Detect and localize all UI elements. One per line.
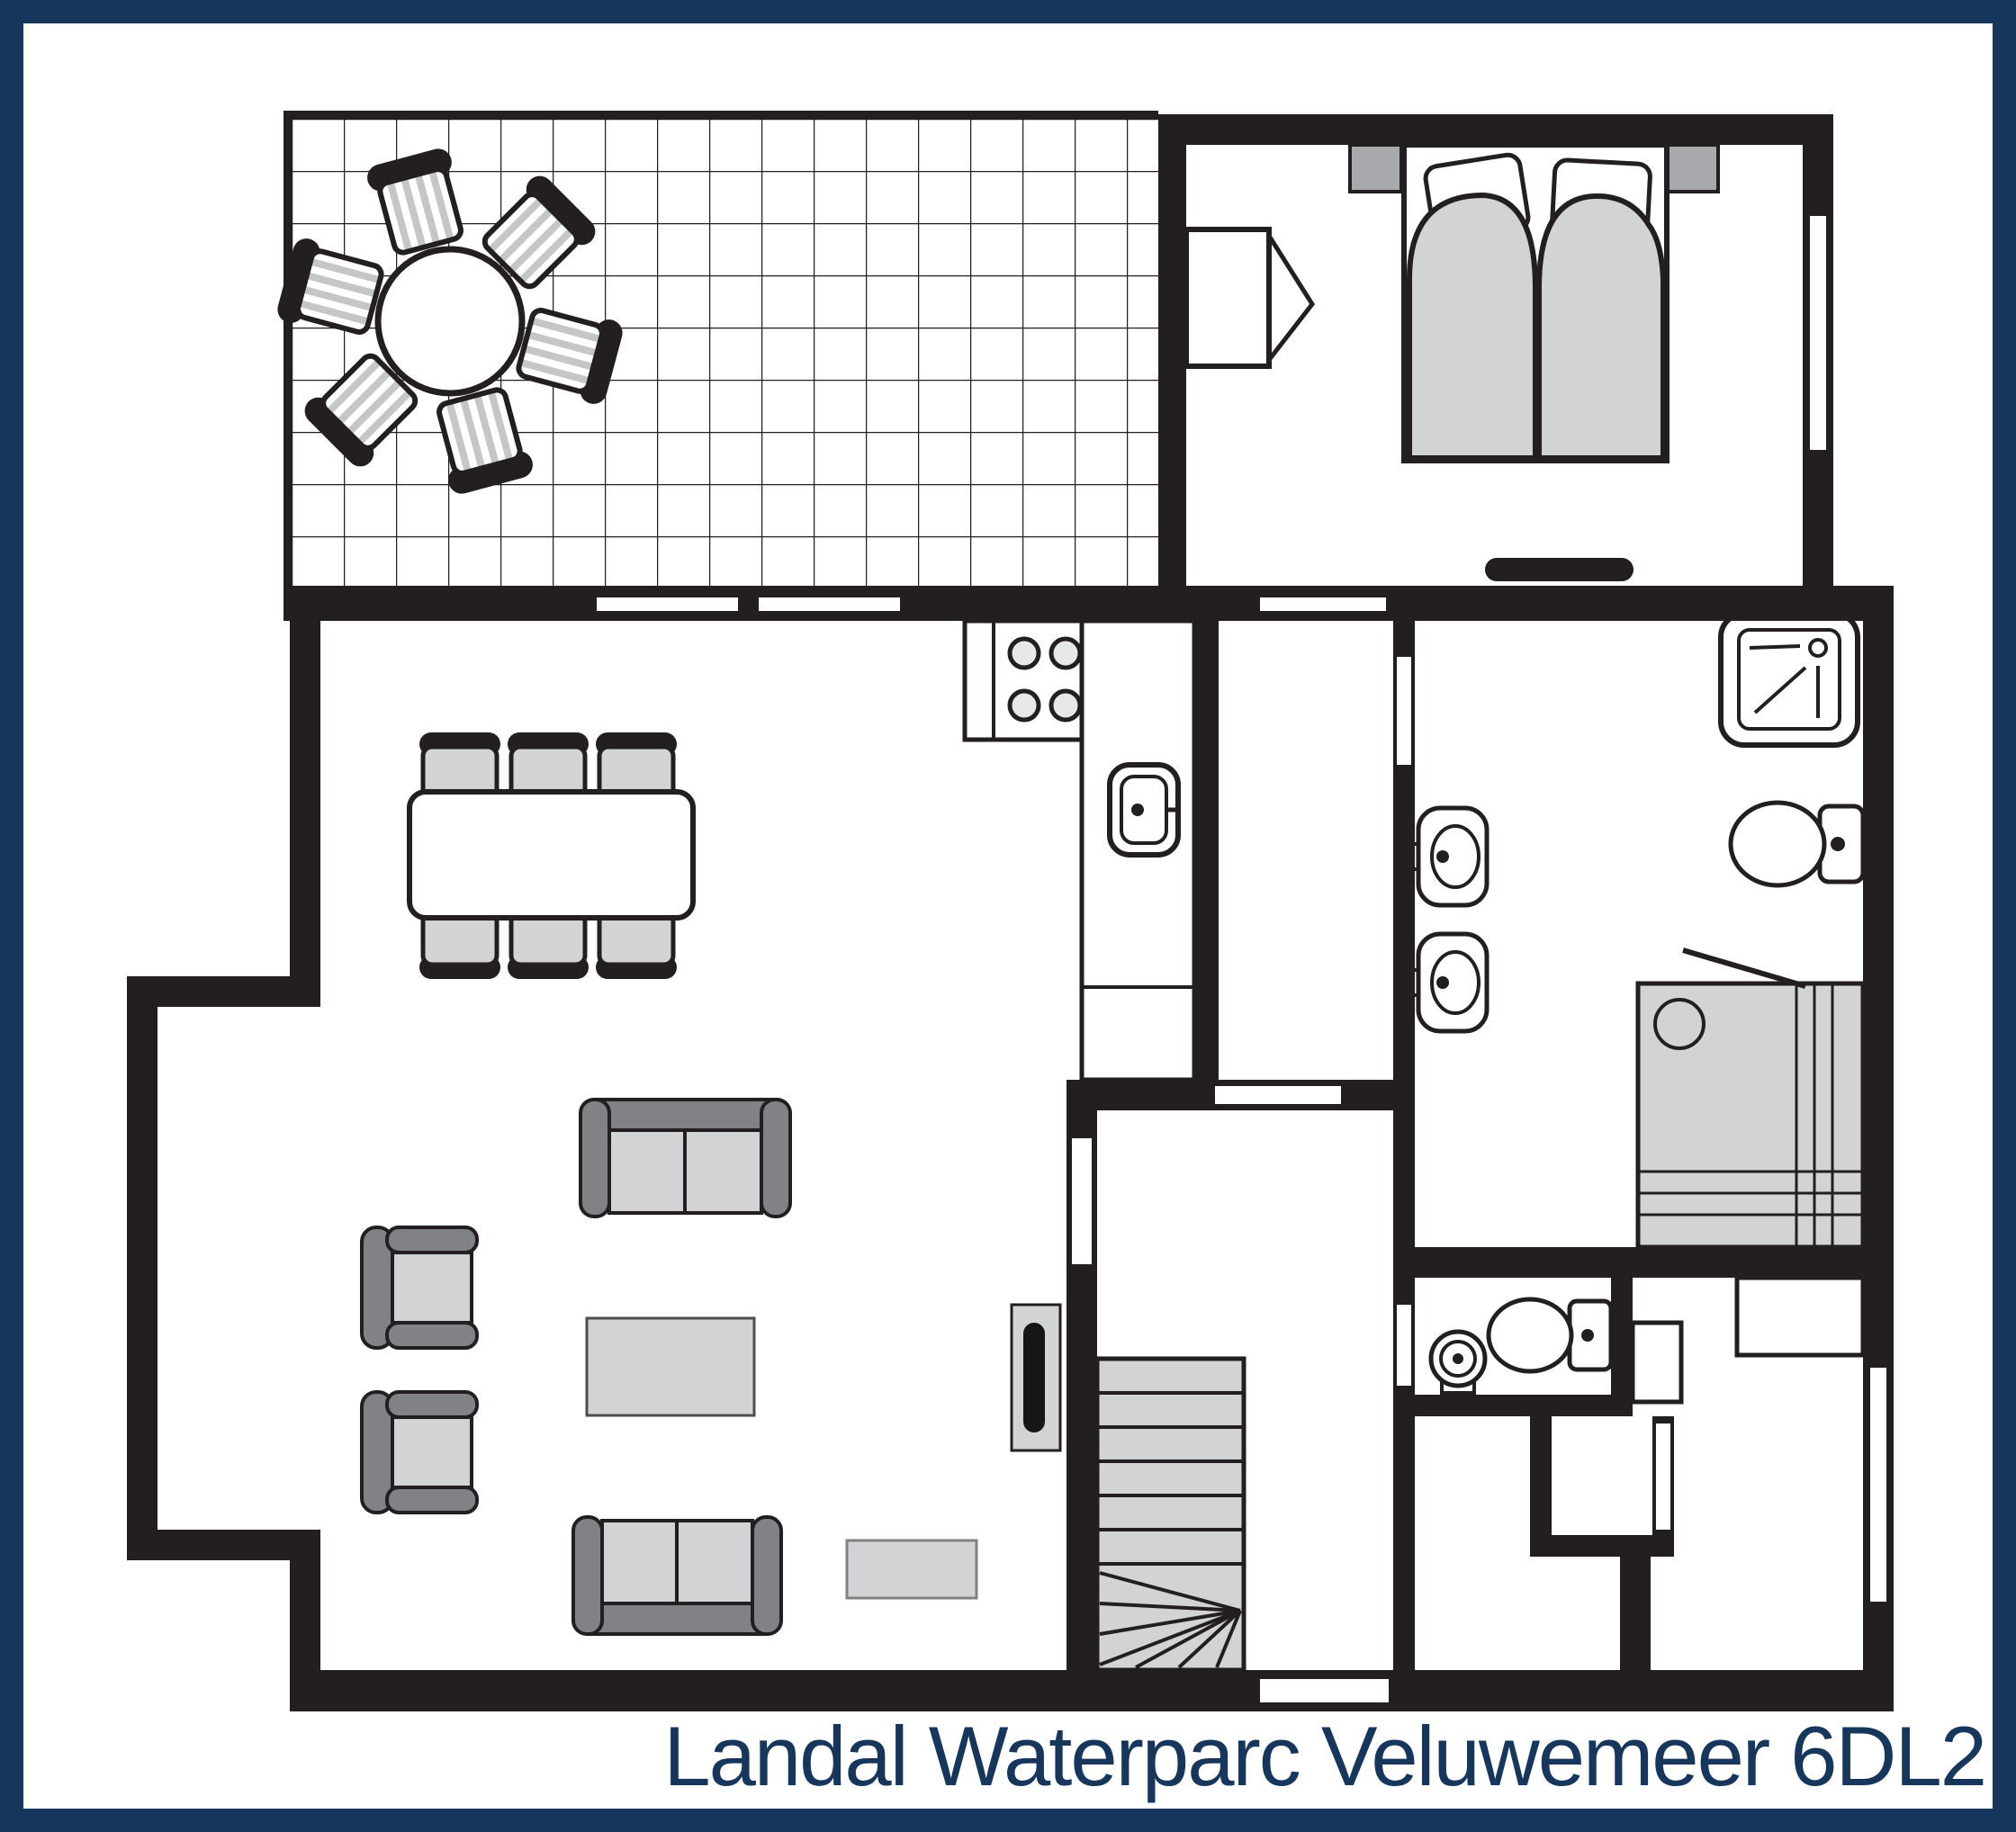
wall (1415, 1395, 1633, 1416)
floorplan-drawing (0, 0, 2016, 1832)
door-opening (1397, 657, 1411, 765)
floorplan-page: Landal Waterparc Veluwemeer 6DL2 (0, 0, 2016, 1832)
dining-chairs-top (419, 732, 677, 799)
wall (127, 976, 157, 1560)
kitchen-counter (1082, 621, 1194, 1080)
wall (1620, 1557, 1651, 1711)
wc-toilet (1489, 1299, 1611, 1371)
window-opening (1810, 216, 1826, 450)
armchair-bottom (362, 1392, 477, 1513)
tv-cabinet (1012, 1305, 1060, 1450)
armchair-top (362, 1227, 477, 1348)
washbasin-icon (1721, 614, 1858, 745)
coffee-table (587, 1318, 754, 1415)
dining-chairs-bottom (419, 912, 677, 979)
kitchen (965, 621, 1194, 1080)
kitchen-sink (1110, 765, 1178, 855)
burner (1010, 639, 1039, 668)
double-bed (1404, 145, 1667, 461)
shower-door (1683, 950, 1805, 986)
wall (283, 586, 1894, 621)
frame-right (1993, 0, 2016, 1832)
living-room (362, 732, 1060, 1634)
bedroom-rug (1485, 558, 1633, 581)
wall (290, 1530, 320, 1711)
wall (290, 621, 320, 1007)
frame-top (0, 0, 2016, 23)
door-opening (1215, 1086, 1341, 1104)
shelf-counter (1737, 1278, 1863, 1355)
nightstand-left (1350, 145, 1401, 192)
sink-upper (1409, 808, 1487, 905)
hand-basin (1431, 1332, 1485, 1393)
wall (1194, 621, 1219, 1110)
door-opening (1260, 597, 1386, 611)
sink-lower (1409, 934, 1487, 1031)
wall (283, 111, 1158, 119)
door-opening (1260, 1679, 1389, 1702)
shower (1638, 950, 1863, 1247)
wall (1393, 1247, 1894, 1278)
duvet-right (1539, 196, 1663, 458)
patio-table (378, 249, 522, 393)
burner (1051, 639, 1080, 668)
sofa-top (580, 1100, 790, 1217)
wc (1431, 1299, 1611, 1393)
window-opening (1870, 1368, 1886, 1602)
doormat (847, 1540, 976, 1598)
door-opening (1397, 1305, 1411, 1386)
wall (1186, 114, 1833, 145)
window-opening (759, 597, 900, 611)
toilet (1731, 803, 1863, 885)
wall (1158, 114, 1186, 621)
frame-left (0, 0, 23, 1832)
plan-title: Landal Waterparc Veluwemeer 6DL2 (545, 1708, 1985, 1805)
terrace (274, 119, 1158, 586)
bathroom (1409, 614, 1863, 1247)
burner (1010, 691, 1039, 720)
burner (1051, 691, 1080, 720)
sofa-bottom (573, 1517, 781, 1634)
stairs (1097, 1359, 1244, 1670)
window-opening (597, 597, 738, 611)
wall (283, 111, 292, 586)
storage-room (1633, 1278, 1863, 1402)
dining-table (409, 792, 693, 918)
door-opening (1072, 1138, 1092, 1264)
frame-bottom (0, 1809, 2016, 1832)
wardrobe-door (1269, 236, 1312, 360)
duvet-left (1409, 195, 1535, 458)
stove (965, 621, 1082, 740)
tv-screen (1023, 1323, 1045, 1432)
bedroom (1186, 145, 1718, 581)
nightstand-right (1667, 145, 1718, 192)
cabinet (1633, 1323, 1681, 1402)
door-opening (1656, 1423, 1670, 1530)
wardrobe (1186, 229, 1312, 366)
